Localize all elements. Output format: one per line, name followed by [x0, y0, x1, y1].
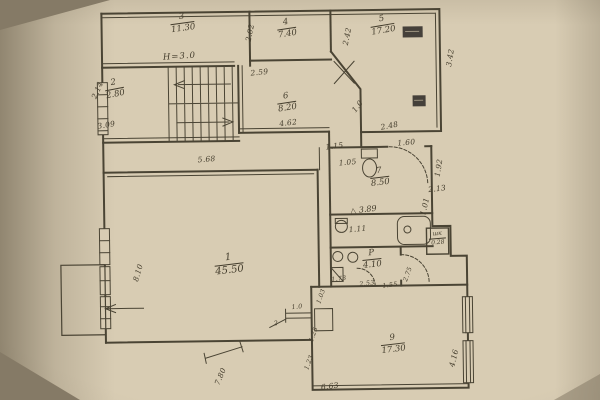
wall-inner-lines [101, 13, 468, 389]
dim-6-63: 6.63 [321, 382, 340, 392]
floor-plan: 3 11.30 4 7.40 5 17.20 2 2.80 6 8.20 7 8… [0, 0, 600, 400]
room-1-label: 1 45.50 [213, 251, 244, 277]
balcony-outline [61, 265, 106, 336]
dim-1-05: 1.05 [338, 158, 356, 167]
bathtub-drain [404, 226, 411, 233]
room-5-label: 5 17.20 [369, 13, 396, 37]
dim-1-15: 1.15 [325, 142, 344, 152]
closet-label: шк 0.28 [428, 230, 446, 246]
stamps [403, 26, 426, 106]
height-note: H=3.0 [163, 52, 197, 63]
floor-plan-drawing [0, 0, 600, 400]
room-area: 4.10 [362, 259, 382, 270]
room-9-label: 9 17.30 [380, 332, 407, 355]
room-4-label: 4 7.40 [276, 17, 298, 40]
scanned-floor-plan-photo: 3 11.30 4 7.40 5 17.20 2 2.80 6 8.20 7 8… [0, 0, 600, 400]
bathtub [397, 216, 430, 244]
dim-1-0-stub: 1.0 [291, 304, 302, 311]
wc-bowl [335, 220, 347, 232]
window-room9-lower [463, 341, 474, 383]
dim-5-68: 5.68 [197, 155, 215, 164]
room-area: 3.89 [358, 204, 377, 215]
shower-triangle-glyph: △ [350, 206, 357, 216]
room-p-label: Р 4.10 [361, 248, 382, 270]
room-7-label: 7 8.50 [369, 166, 390, 188]
walls [101, 9, 468, 393]
dim-1-11: 1.11 [348, 225, 367, 234]
dim-4-62: 4.62 [279, 118, 298, 128]
sink-right [348, 252, 358, 262]
room-area: 0.28 [429, 238, 447, 246]
window-room9-upper [462, 297, 473, 333]
balcony-arrow [105, 304, 143, 313]
toilet-tank [361, 149, 377, 158]
room-6-label: 6 8.20 [276, 91, 298, 114]
sink-left [333, 251, 343, 261]
staircase [168, 66, 239, 142]
room-area: 8.50 [370, 176, 390, 188]
room-2-label: 2 2.80 [103, 77, 125, 100]
dim-1-60: 1.60 [397, 138, 415, 147]
dim-2-arrow: 2 [274, 321, 279, 328]
dim-2-13: 2.13 [428, 184, 447, 194]
dim-2-59: 2.59 [250, 68, 269, 77]
window-room1 [99, 229, 110, 265]
room-3-label: 3 11.30 [169, 11, 196, 34]
